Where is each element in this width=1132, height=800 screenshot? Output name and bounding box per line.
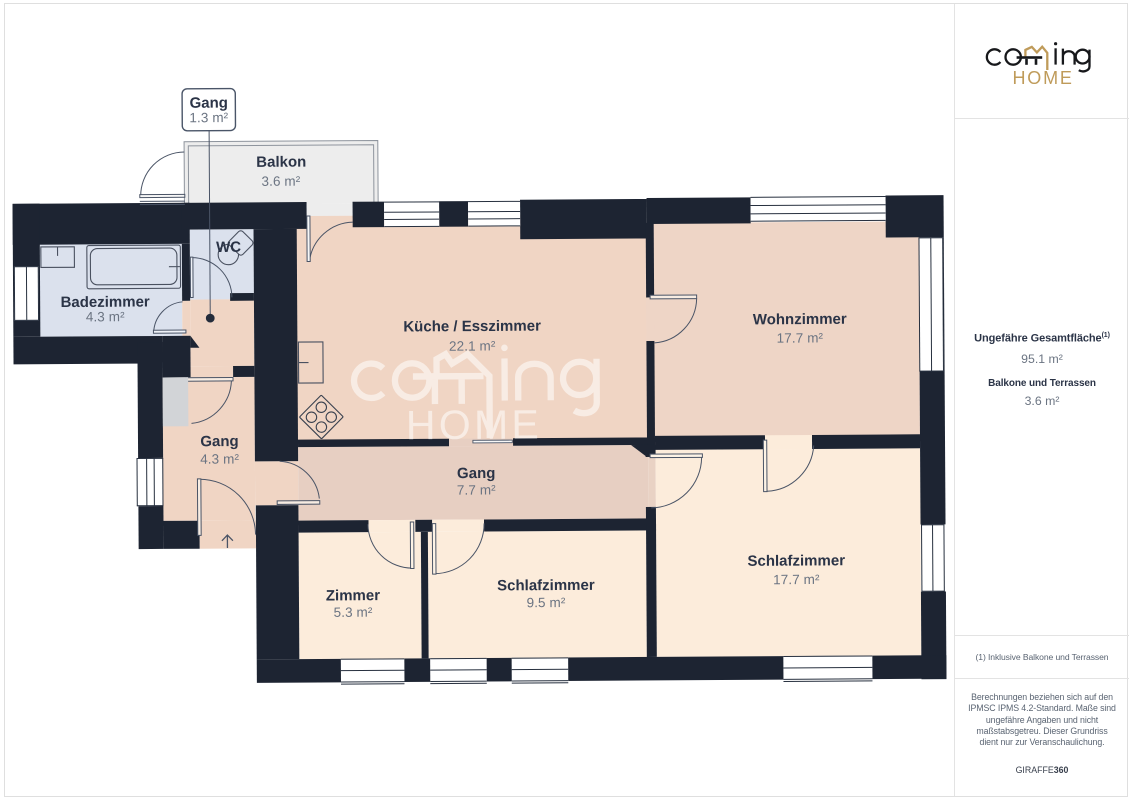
svg-text:Gang: Gang [200,433,238,450]
svg-text:17.7 m²: 17.7 m² [773,572,820,587]
svg-text:5.3 m²: 5.3 m² [334,605,373,620]
svg-text:3.6 m²: 3.6 m² [261,174,300,189]
svg-text:7.7 m²: 7.7 m² [457,482,496,497]
svg-text:4.3 m²: 4.3 m² [200,451,239,466]
svg-text:Schlafzimmer: Schlafzimmer [497,577,595,595]
svg-text:HOME: HOME [406,401,542,448]
svg-text:Schlafzimmer: Schlafzimmer [747,552,845,570]
svg-text:9.5 m²: 9.5 m² [527,595,566,610]
svg-text:1.3 m²: 1.3 m² [189,110,228,125]
svg-text:Zimmer: Zimmer [326,587,380,604]
svg-text:4.3 m²: 4.3 m² [86,309,125,324]
svg-text:WC: WC [216,239,241,256]
svg-text:Gang: Gang [457,465,495,482]
svg-text:22.1 m²: 22.1 m² [449,338,496,353]
svg-text:Küche / Esszimmer: Küche / Esszimmer [403,318,541,336]
svg-text:17.7 m²: 17.7 m² [777,330,824,345]
svg-text:Balkon: Balkon [256,154,306,171]
svg-text:HOME: HOME [1013,68,1074,88]
svg-text:Wohnzimmer: Wohnzimmer [753,311,847,329]
